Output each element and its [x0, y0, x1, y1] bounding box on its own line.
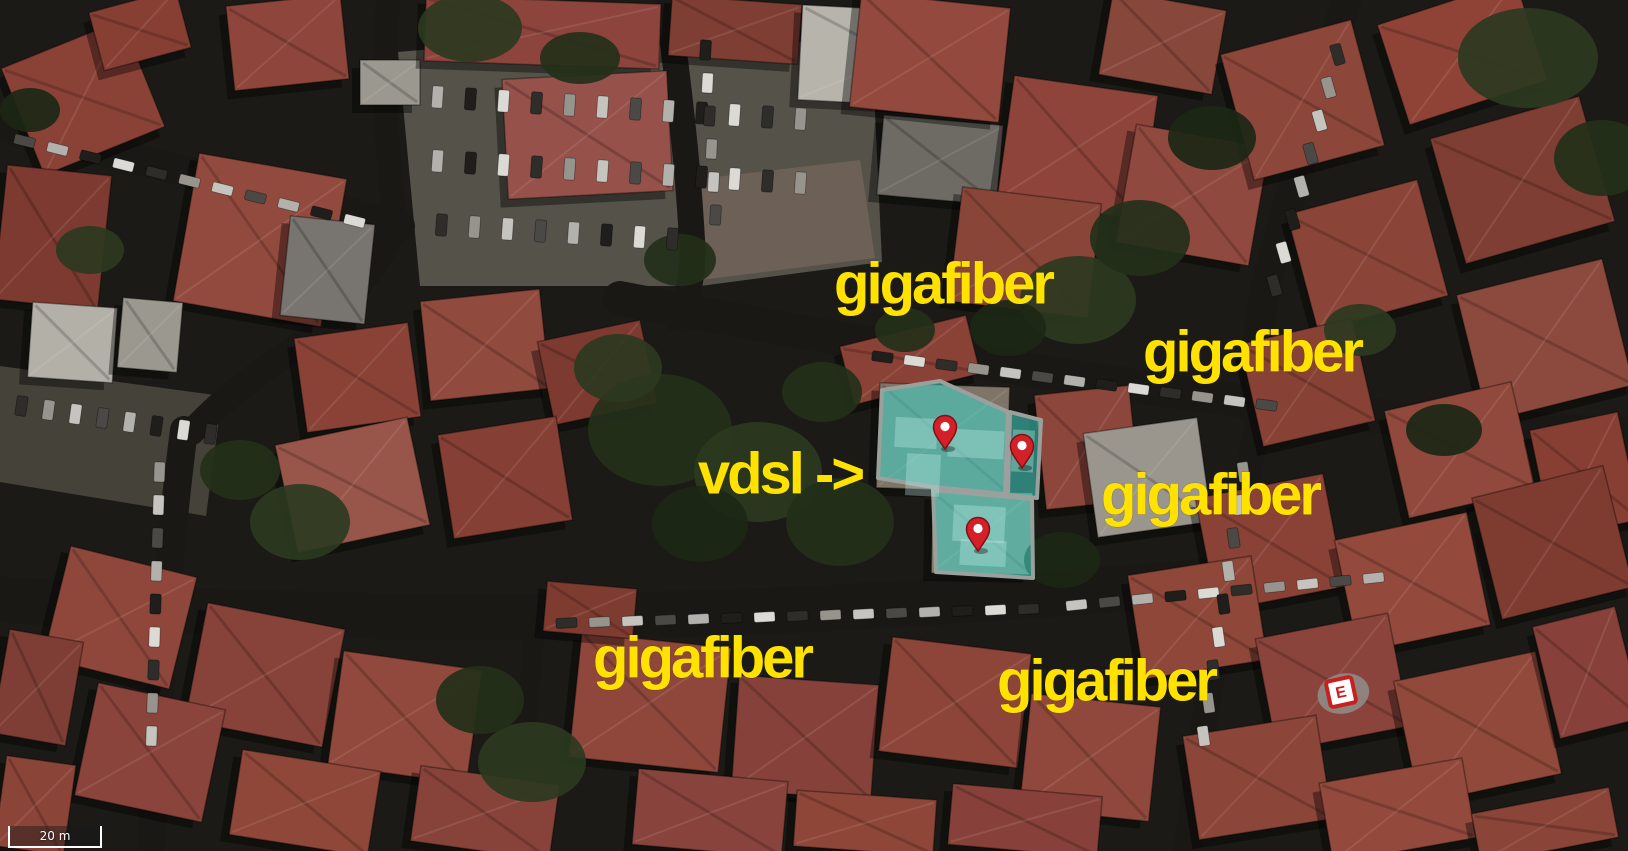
parked-car	[556, 617, 577, 628]
parked-car	[1165, 590, 1187, 602]
pin-dot	[973, 524, 982, 533]
parked-car	[147, 693, 159, 713]
parked-car	[728, 168, 741, 191]
parked-car	[662, 100, 675, 123]
parked-car	[150, 594, 162, 614]
annotation-gigafiber-4: gigafiber	[593, 626, 813, 691]
parked-car	[596, 96, 609, 119]
parked-car	[501, 218, 514, 241]
parked-car	[431, 86, 444, 109]
building-roof	[849, 0, 1010, 123]
parked-car	[468, 216, 481, 239]
tree-canopy	[200, 440, 280, 500]
parked-car	[728, 104, 741, 127]
parked-car	[464, 152, 477, 175]
parked-car	[761, 106, 774, 129]
parked-car	[177, 419, 191, 440]
scale-bar-label: 20 m	[40, 830, 71, 842]
parked-car	[154, 462, 166, 482]
parked-car	[1264, 581, 1286, 593]
highlighted-rooftop-detail	[905, 453, 941, 497]
parked-car	[761, 170, 774, 193]
parked-car	[530, 92, 543, 115]
parked-car	[497, 90, 510, 113]
parked-car	[985, 604, 1006, 615]
parked-car	[919, 606, 940, 617]
pin-dot	[1017, 441, 1026, 450]
parked-car	[1222, 560, 1236, 581]
parked-car	[695, 166, 708, 189]
parked-car	[707, 172, 719, 193]
parked-car	[1297, 578, 1319, 590]
tree-canopy	[436, 666, 524, 734]
parked-car	[42, 399, 56, 420]
parked-car	[563, 158, 576, 181]
parked-car	[567, 222, 580, 245]
parked-car	[1197, 725, 1211, 746]
parked-car	[464, 88, 477, 111]
annotation-gigafiber-1: gigafiber	[834, 252, 1054, 317]
building-roof	[226, 0, 349, 91]
parked-car	[655, 614, 676, 625]
annotation-gigafiber-3: gigafiber	[1101, 463, 1321, 528]
parked-car	[952, 605, 973, 616]
parked-car	[787, 610, 808, 621]
tree-canopy	[478, 722, 586, 802]
parked-car	[600, 224, 613, 247]
parked-car	[1217, 593, 1231, 614]
pin-dot	[940, 422, 949, 431]
parked-car	[1132, 593, 1154, 605]
parked-car	[703, 106, 715, 127]
parked-car	[150, 415, 164, 436]
parked-car	[1363, 572, 1385, 584]
parked-car	[633, 226, 646, 249]
parked-car	[497, 154, 510, 177]
map-scale-bar: 20 m	[8, 826, 102, 848]
parked-car	[534, 220, 547, 243]
parked-car	[886, 607, 907, 618]
tree-canopy	[540, 32, 620, 84]
parked-car	[96, 407, 110, 428]
parked-car	[705, 139, 717, 160]
tree-canopy	[574, 334, 662, 402]
parked-car	[152, 528, 164, 548]
parked-car	[1099, 596, 1121, 608]
parked-car	[146, 726, 158, 746]
parked-car	[596, 160, 609, 183]
parked-car	[123, 411, 137, 432]
parked-car	[15, 395, 29, 416]
parked-car	[153, 495, 165, 515]
parked-car	[699, 40, 711, 61]
annotation-gigafiber-5: gigafiber	[997, 649, 1217, 714]
highlighted-rooftop-detail	[894, 417, 938, 449]
tree-canopy	[56, 226, 124, 274]
parked-car	[794, 108, 807, 131]
parked-car	[1198, 587, 1220, 599]
parked-car	[721, 612, 742, 623]
parked-car	[1227, 527, 1241, 548]
parked-car	[666, 228, 679, 251]
parked-car	[435, 214, 448, 237]
tree-canopy	[644, 234, 716, 286]
tree-canopy	[1458, 8, 1598, 108]
parked-car	[853, 608, 874, 619]
tree-canopy	[782, 362, 862, 422]
parked-car	[629, 98, 642, 121]
parked-car	[431, 150, 444, 173]
parked-car	[629, 162, 642, 185]
parked-car	[69, 403, 83, 424]
parked-car	[148, 660, 160, 680]
parked-car	[1212, 626, 1226, 647]
tree-canopy	[1168, 106, 1256, 170]
parked-car	[701, 73, 713, 94]
parked-car	[709, 205, 721, 226]
parked-car	[662, 164, 675, 187]
parked-car	[794, 172, 807, 195]
tree-canopy	[1406, 404, 1482, 456]
tree-canopy	[250, 484, 350, 560]
parked-car	[1018, 603, 1039, 614]
tree-canopy	[1090, 200, 1190, 276]
parked-car	[204, 423, 218, 444]
parked-car	[688, 613, 709, 624]
parked-car	[1066, 599, 1088, 611]
parked-car	[530, 156, 543, 179]
aerial-map-view[interactable]: Egigafibergigafibergigafibervdsl ->gigaf…	[0, 0, 1628, 851]
tree-canopy	[0, 88, 60, 132]
parked-car	[1231, 584, 1253, 596]
annotation-gigafiber-2: gigafiber	[1143, 320, 1363, 385]
parked-car	[563, 94, 576, 117]
parked-car	[149, 627, 161, 647]
parked-car	[754, 611, 775, 622]
parked-car	[151, 561, 163, 581]
parked-car	[820, 609, 841, 620]
satellite-imagery: Egigafibergigafibergigafibervdsl ->gigaf…	[0, 0, 1628, 851]
tree-canopy	[1024, 532, 1100, 588]
parked-car	[1330, 575, 1352, 587]
annotation-vdsl-arrow: vdsl ->	[698, 442, 863, 507]
